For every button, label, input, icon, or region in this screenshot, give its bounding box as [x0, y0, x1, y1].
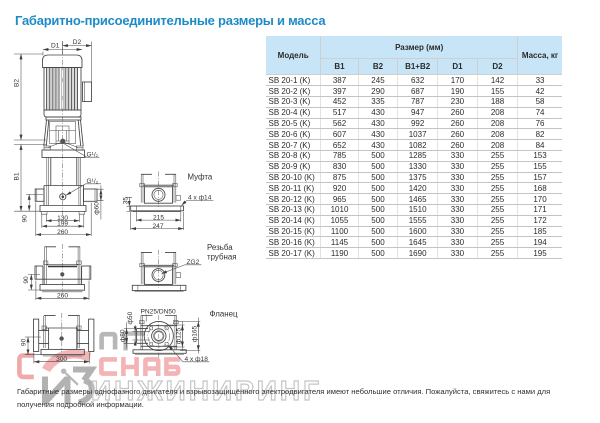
svg-text:B1: B1: [14, 172, 21, 180]
svg-text:4 x ф14: 4 x ф14: [188, 194, 212, 201]
svg-text:G¹/₂: G¹/₂: [87, 178, 99, 185]
svg-text:ф80: ф80: [119, 329, 126, 342]
svg-text:35: 35: [122, 197, 129, 205]
svg-text:90: 90: [20, 338, 27, 346]
svg-text:199: 199: [57, 221, 68, 228]
svg-text:PN25/DN50: PN25/DN50: [141, 309, 177, 316]
svg-text:Муфта: Муфта: [188, 172, 213, 181]
svg-text:247: 247: [152, 223, 163, 230]
svg-text:215: 215: [153, 214, 164, 221]
svg-text:300: 300: [56, 356, 67, 363]
svg-text:Фланец: Фланец: [210, 309, 238, 318]
svg-text:ф60: ф60: [94, 202, 101, 215]
svg-text:260: 260: [57, 229, 68, 236]
svg-text:трубная: трубная: [207, 252, 237, 261]
svg-text:G¹/₂: G¹/₂: [87, 151, 99, 158]
svg-text:ф125: ф125: [176, 327, 183, 344]
svg-text:D2: D2: [73, 39, 82, 46]
svg-text:ZG2: ZG2: [187, 259, 200, 266]
svg-text:D1: D1: [51, 43, 60, 50]
svg-text:B2: B2: [14, 79, 21, 87]
svg-text:Резьба: Резьба: [207, 243, 233, 252]
svg-text:90: 90: [23, 276, 30, 284]
svg-text:ф165: ф165: [191, 325, 198, 342]
svg-text:4 x ф18: 4 x ф18: [185, 356, 209, 363]
svg-text:90: 90: [22, 215, 29, 223]
svg-text:260: 260: [57, 293, 68, 300]
svg-text:ф50: ф50: [127, 311, 134, 324]
